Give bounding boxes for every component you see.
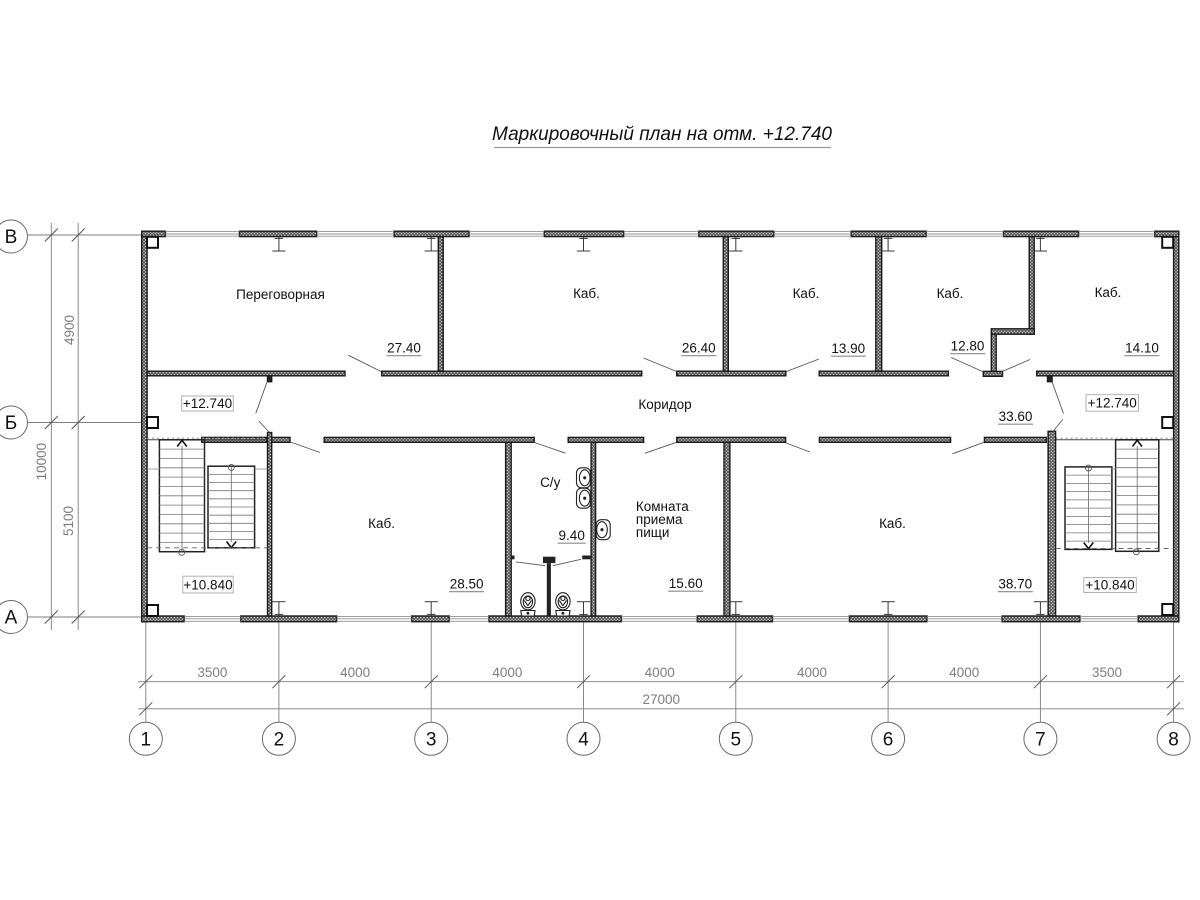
- svg-text:4: 4: [578, 729, 589, 750]
- svg-text:4000: 4000: [645, 665, 675, 680]
- svg-text:5: 5: [731, 729, 742, 750]
- svg-text:+10.840: +10.840: [1085, 578, 1134, 593]
- svg-text:15.60: 15.60: [669, 576, 703, 591]
- svg-text:12.80: 12.80: [951, 339, 985, 354]
- svg-text:1: 1: [141, 729, 152, 750]
- svg-text:Каб.: Каб.: [937, 286, 964, 301]
- svg-text:Каб.: Каб.: [573, 286, 600, 301]
- svg-text:26.40: 26.40: [682, 341, 716, 356]
- svg-text:А: А: [5, 608, 18, 629]
- svg-text:8: 8: [1168, 729, 1179, 750]
- svg-text:13.90: 13.90: [831, 341, 865, 356]
- svg-text:10000: 10000: [34, 443, 49, 481]
- svg-text:14.10: 14.10: [1125, 341, 1159, 356]
- svg-text:9.40: 9.40: [559, 528, 585, 543]
- svg-text:27000: 27000: [643, 692, 681, 707]
- svg-text:Переговорная: Переговорная: [236, 287, 325, 302]
- svg-text:пищи: пищи: [636, 525, 670, 540]
- svg-text:С/у: С/у: [540, 475, 561, 490]
- svg-text:Каб.: Каб.: [368, 516, 395, 531]
- svg-text:5100: 5100: [61, 506, 76, 536]
- svg-text:27.40: 27.40: [387, 341, 421, 356]
- svg-text:33.60: 33.60: [999, 409, 1033, 424]
- svg-text:4000: 4000: [797, 665, 827, 680]
- svg-text:Каб.: Каб.: [879, 516, 906, 531]
- svg-text:В: В: [5, 227, 18, 248]
- svg-text:38.70: 38.70: [998, 577, 1032, 592]
- svg-text:+10.840: +10.840: [183, 577, 232, 592]
- svg-text:6: 6: [883, 729, 894, 750]
- svg-text:2: 2: [274, 729, 285, 750]
- svg-text:28.50: 28.50: [450, 577, 484, 592]
- svg-text:3: 3: [426, 729, 437, 750]
- svg-text:Каб.: Каб.: [1095, 285, 1122, 300]
- svg-text:+12.740: +12.740: [1088, 396, 1137, 411]
- svg-text:3500: 3500: [1092, 665, 1122, 680]
- svg-text:+12.740: +12.740: [183, 396, 232, 411]
- svg-text:4900: 4900: [62, 315, 77, 345]
- svg-text:7: 7: [1035, 729, 1046, 750]
- svg-text:Коридор: Коридор: [638, 397, 691, 412]
- svg-text:Б: Б: [5, 413, 17, 434]
- svg-text:3500: 3500: [197, 665, 227, 680]
- svg-text:Маркировочный план на отм. +12: Маркировочный план на отм. +12.740: [492, 124, 832, 145]
- svg-text:4000: 4000: [340, 665, 370, 680]
- svg-text:Каб.: Каб.: [793, 286, 820, 301]
- svg-text:4000: 4000: [492, 665, 522, 680]
- svg-text:4000: 4000: [949, 665, 979, 680]
